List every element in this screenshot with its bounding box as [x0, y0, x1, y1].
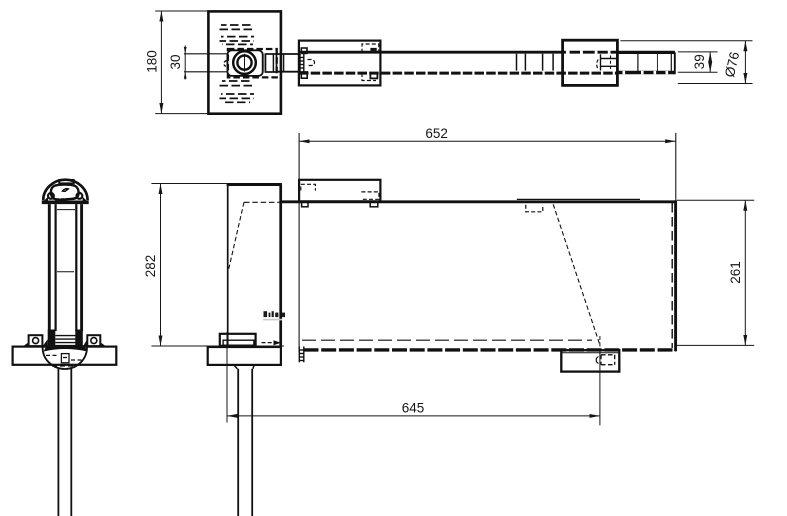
svg-text:39: 39: [692, 54, 707, 69]
svg-text:652: 652: [425, 126, 448, 141]
svg-text:261: 261: [728, 261, 743, 284]
svg-text:30: 30: [168, 54, 183, 69]
svg-text:645: 645: [402, 401, 425, 416]
svg-text:180: 180: [144, 50, 159, 73]
svg-text:282: 282: [143, 255, 158, 278]
